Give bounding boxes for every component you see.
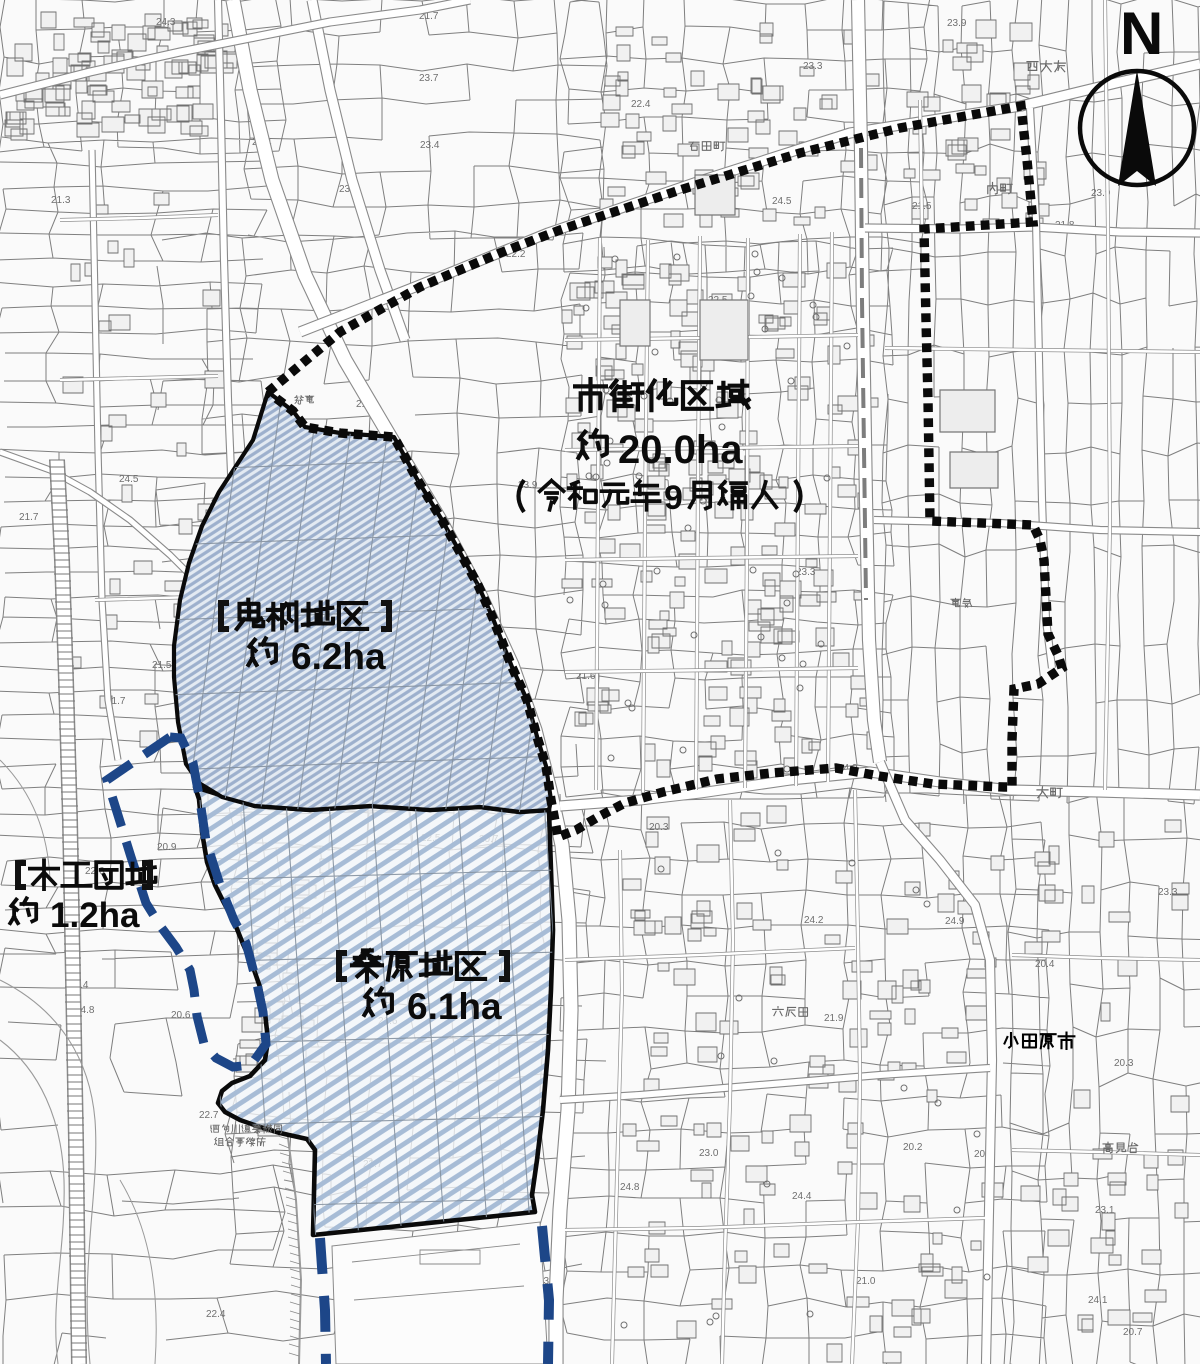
svg-text:6.1ha: 6.1ha [407, 986, 502, 1027]
svg-text:23.3: 23.3 [1158, 887, 1178, 898]
svg-text:1.2ha: 1.2ha [50, 896, 140, 935]
svg-text:22.4: 22.4 [206, 1309, 226, 1320]
svg-text:21.5: 21.5 [152, 660, 172, 671]
svg-text:23.4: 23.4 [420, 140, 440, 151]
svg-text:24.1: 24.1 [1088, 1295, 1108, 1306]
svg-text:20.7: 20.7 [1123, 1327, 1143, 1338]
svg-text:20.4: 20.4 [1035, 959, 1055, 970]
svg-text:20.2: 20.2 [903, 1142, 923, 1153]
svg-text:21.0: 21.0 [856, 1276, 876, 1287]
svg-text:24.2: 24.2 [804, 915, 824, 926]
svg-text:20.3: 20.3 [1114, 1058, 1134, 1069]
svg-text:23.1: 23.1 [1095, 1205, 1115, 1216]
svg-text:20.9: 20.9 [157, 842, 177, 853]
svg-text:23.7: 23.7 [419, 73, 439, 84]
svg-text:20.3: 20.3 [649, 822, 669, 833]
svg-text:20.6: 20.6 [171, 1010, 191, 1021]
svg-text:21.9: 21.9 [824, 1013, 844, 1024]
svg-text:22.4: 22.4 [631, 99, 651, 110]
svg-text:21.7: 21.7 [19, 512, 39, 523]
svg-text:23.0: 23.0 [699, 1148, 719, 1159]
svg-text:23.3: 23.3 [803, 61, 823, 72]
svg-text:24.5: 24.5 [119, 474, 139, 485]
svg-text:24.9: 24.9 [945, 916, 965, 927]
svg-text:9: 9 [664, 479, 683, 517]
svg-text:24.3: 24.3 [156, 17, 176, 28]
svg-text:6.2ha: 6.2ha [291, 636, 386, 677]
svg-text:24.4: 24.4 [792, 1191, 812, 1202]
svg-text:24.5: 24.5 [772, 196, 792, 207]
svg-text:22.7: 22.7 [199, 1110, 219, 1121]
svg-text:24.8: 24.8 [620, 1182, 640, 1193]
svg-text:21.3: 21.3 [51, 195, 71, 206]
svg-text:23.9: 23.9 [947, 18, 967, 29]
svg-text:20.0ha: 20.0ha [618, 428, 743, 472]
svg-text:N: N [1120, 0, 1163, 67]
